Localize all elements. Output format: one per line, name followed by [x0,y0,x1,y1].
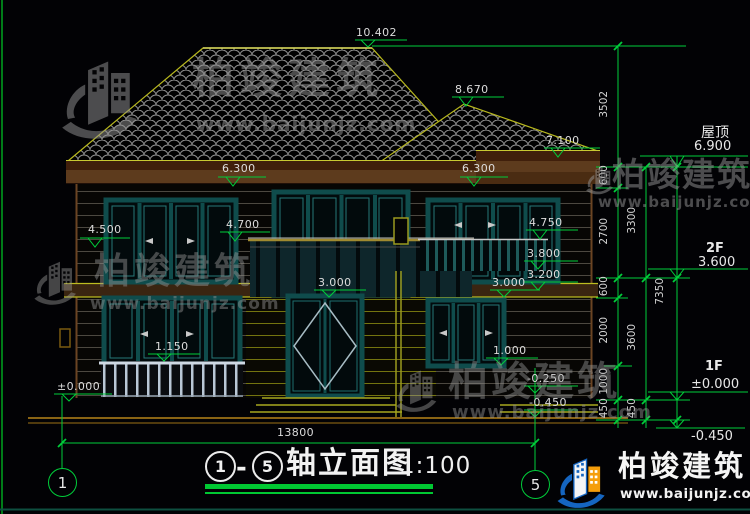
dim-4500: 4.500 [88,224,122,235]
dim-right-eave2: 6.300 [462,163,496,174]
axis-bubble-1: 1 [48,468,77,497]
title-axis-end-circle: 5 [252,451,283,482]
dim-1150: 1.150 [155,341,189,352]
drawing-scale: 1:100 [400,455,471,478]
title-axis-start-circle: 1 [205,451,236,482]
chain-7350: 7350 [655,269,666,313]
watermark-url-text: www.baijunjz.com [598,195,750,210]
watermark-logo-icon [28,250,84,312]
roof-level: 6.900 [694,140,731,153]
cad-elevation-canvas: 10.402 8.670 7.100 6.300 6.300 4.500 4.7… [0,0,750,514]
dim-zero-left: ±0.000 [57,381,100,392]
watermark-brand-text: 柏竣建筑 [612,158,750,191]
brand-logo: 柏竣建筑 www.baijunjz.com [550,452,750,512]
axis-bubble-1-digit: 1 [58,474,68,492]
floor2-label: 2F [706,242,724,255]
drawing-title: 轴立面图 [286,449,414,479]
entry-door [288,296,362,396]
brand-logo-url: www.baijunjz.com [620,488,750,502]
brand-logo-text: 柏竣建筑 [618,452,746,481]
watermark-logo-icon [390,356,444,422]
ground-level-label: -0.450 [691,430,733,443]
axis-bubble-5: 5 [521,470,550,499]
dim-left-eave: 6.300 [222,163,256,174]
watermark-brand-text: 柏竣建筑 [94,254,254,290]
porch-fence-1f-left [99,362,245,397]
floor1-level: ±0.000 [691,378,739,391]
axis-bubble-5-digit: 5 [531,476,541,494]
dim-total-width: 13800 [277,427,314,438]
title-axis-end: 5 [262,457,273,476]
dim-3000-right: 3.000 [492,277,526,288]
title-underline-thin [205,492,433,494]
dim-4700: 4.700 [226,219,260,230]
chain-3502: 3502 [599,82,610,126]
floor1-label: 1F [705,360,723,373]
watermark-url-text: www.baijunjz.com [452,404,652,422]
dim-roof-break: 8.670 [455,84,489,95]
title-separator: - [236,455,247,481]
watermark-url-text: www.baijunjz.com [90,296,280,313]
chain-2700: 2700 [599,209,610,253]
watermark-logo-icon [46,50,156,142]
watermark-url-text: www.baijunjz.com [196,114,416,134]
watermark-brand-text: 柏竣建筑 [448,362,620,402]
dim-4750: 4.750 [529,217,563,228]
dim-3800: 3.800 [527,248,561,259]
dim-1000: 1.000 [493,345,527,356]
title-axis-start: 1 [215,457,226,476]
floor2-level: 3.600 [698,256,735,269]
dim-right-eave: 7.100 [546,135,580,146]
brand-logo-icon [550,452,614,510]
chain-2000: 2000 [599,308,610,352]
chain-600b: 600 [599,264,610,308]
roof-label: 屋顶 [701,126,729,140]
dim-door-top: 3.000 [318,277,352,288]
dim-3200: 3.200 [527,269,561,280]
title-underline-thick [205,484,433,489]
watermark-brand-text: 柏竣建筑 [192,58,384,100]
dim-peak: 10.402 [356,27,397,38]
chain-3600: 3600 [627,315,638,359]
